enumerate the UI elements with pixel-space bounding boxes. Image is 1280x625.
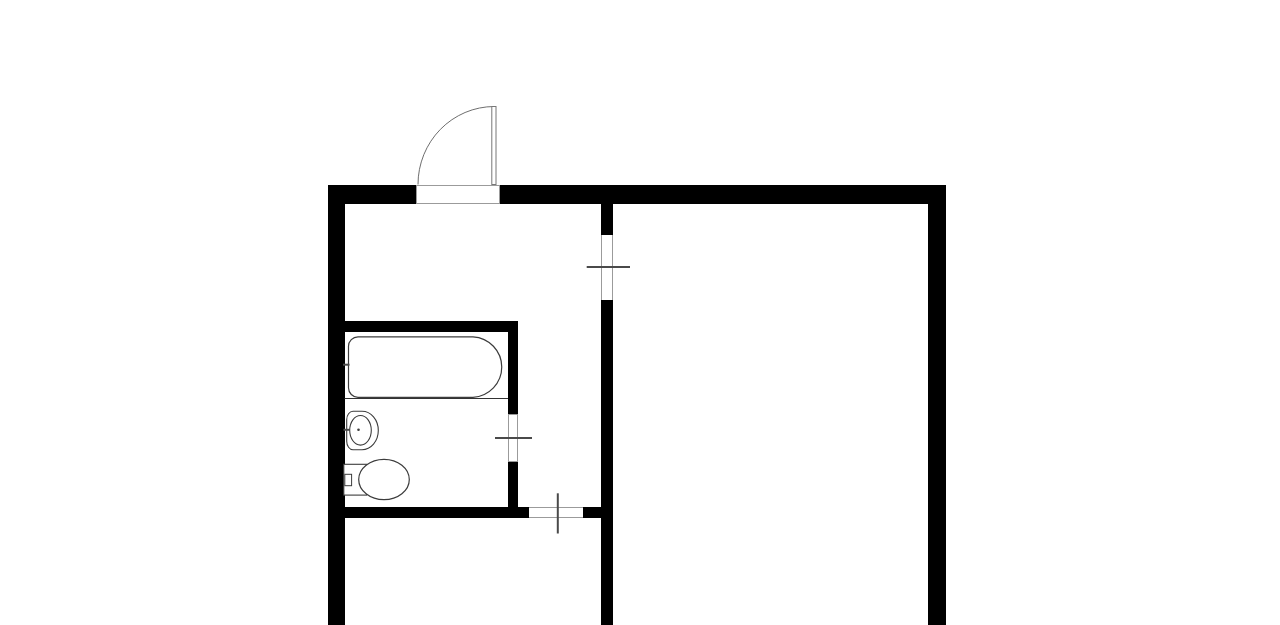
entry-door-swing-arc <box>418 107 494 185</box>
sink-drain-dot <box>357 429 360 432</box>
toilet-flush-button <box>345 474 352 485</box>
floor-plan-fixtures-layer <box>0 0 1280 625</box>
bathtub <box>349 337 502 398</box>
sink-rim <box>347 411 379 449</box>
floor-plan <box>0 0 1280 625</box>
entry-door-leaf <box>492 107 496 185</box>
toilet-bowl <box>359 459 410 499</box>
